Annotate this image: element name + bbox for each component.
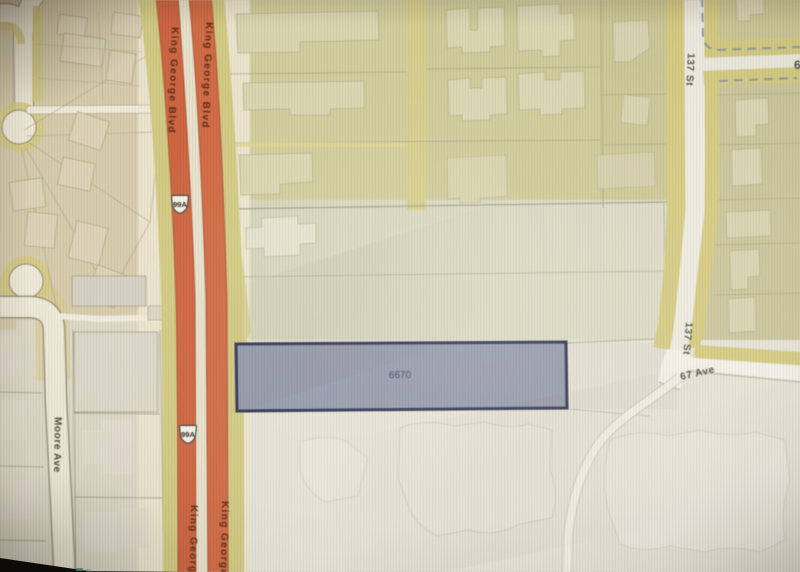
- svg-text:137 St: 137 St: [683, 53, 696, 87]
- svg-text:6670: 6670: [389, 370, 412, 381]
- svg-text:67: 67: [794, 58, 800, 72]
- svg-text:99A: 99A: [181, 430, 195, 439]
- svg-text:Moore Ave: Moore Ave: [51, 417, 63, 473]
- svg-text:King George: King George: [218, 501, 230, 572]
- svg-text:99A: 99A: [173, 200, 187, 209]
- svg-text:King George: King George: [187, 505, 199, 572]
